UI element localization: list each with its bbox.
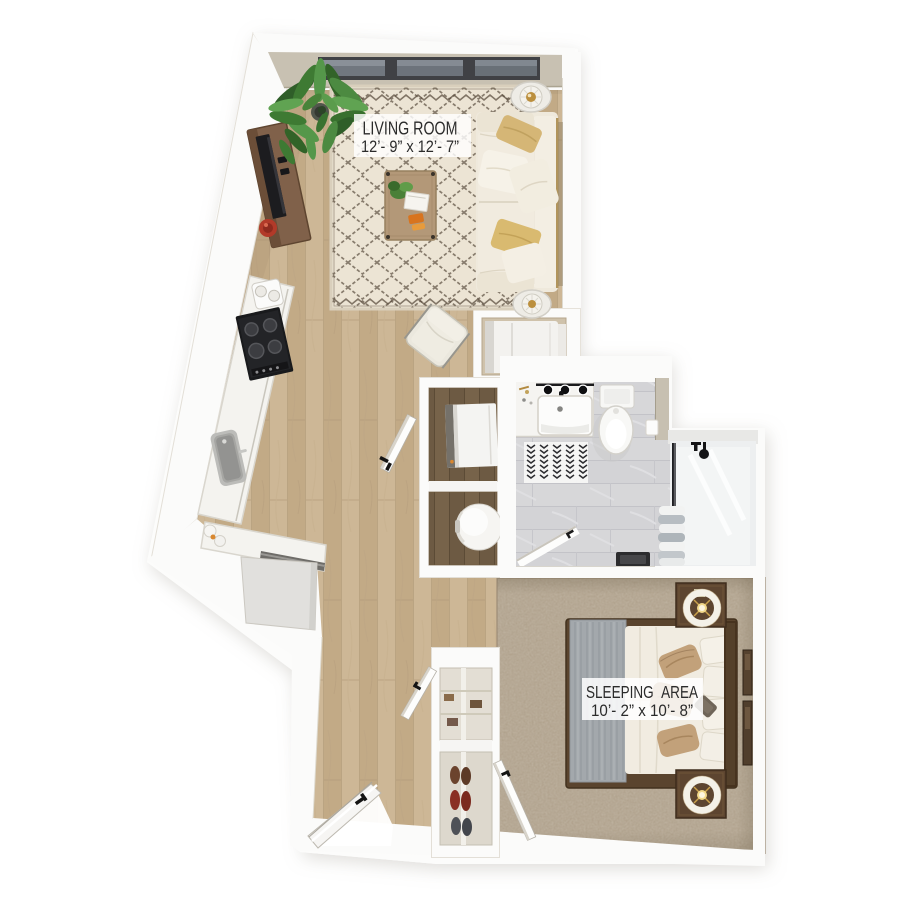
svg-text:LIVING ROOM: LIVING ROOM [363, 119, 458, 139]
svg-text:10’- 2” x 10’- 8”: 10’- 2” x 10’- 8” [591, 702, 693, 720]
svg-text:SLEEPING AREA: SLEEPING AREA [586, 682, 698, 702]
svg-text:12’- 9” x 12’- 7”: 12’- 9” x 12’- 7” [361, 137, 459, 156]
